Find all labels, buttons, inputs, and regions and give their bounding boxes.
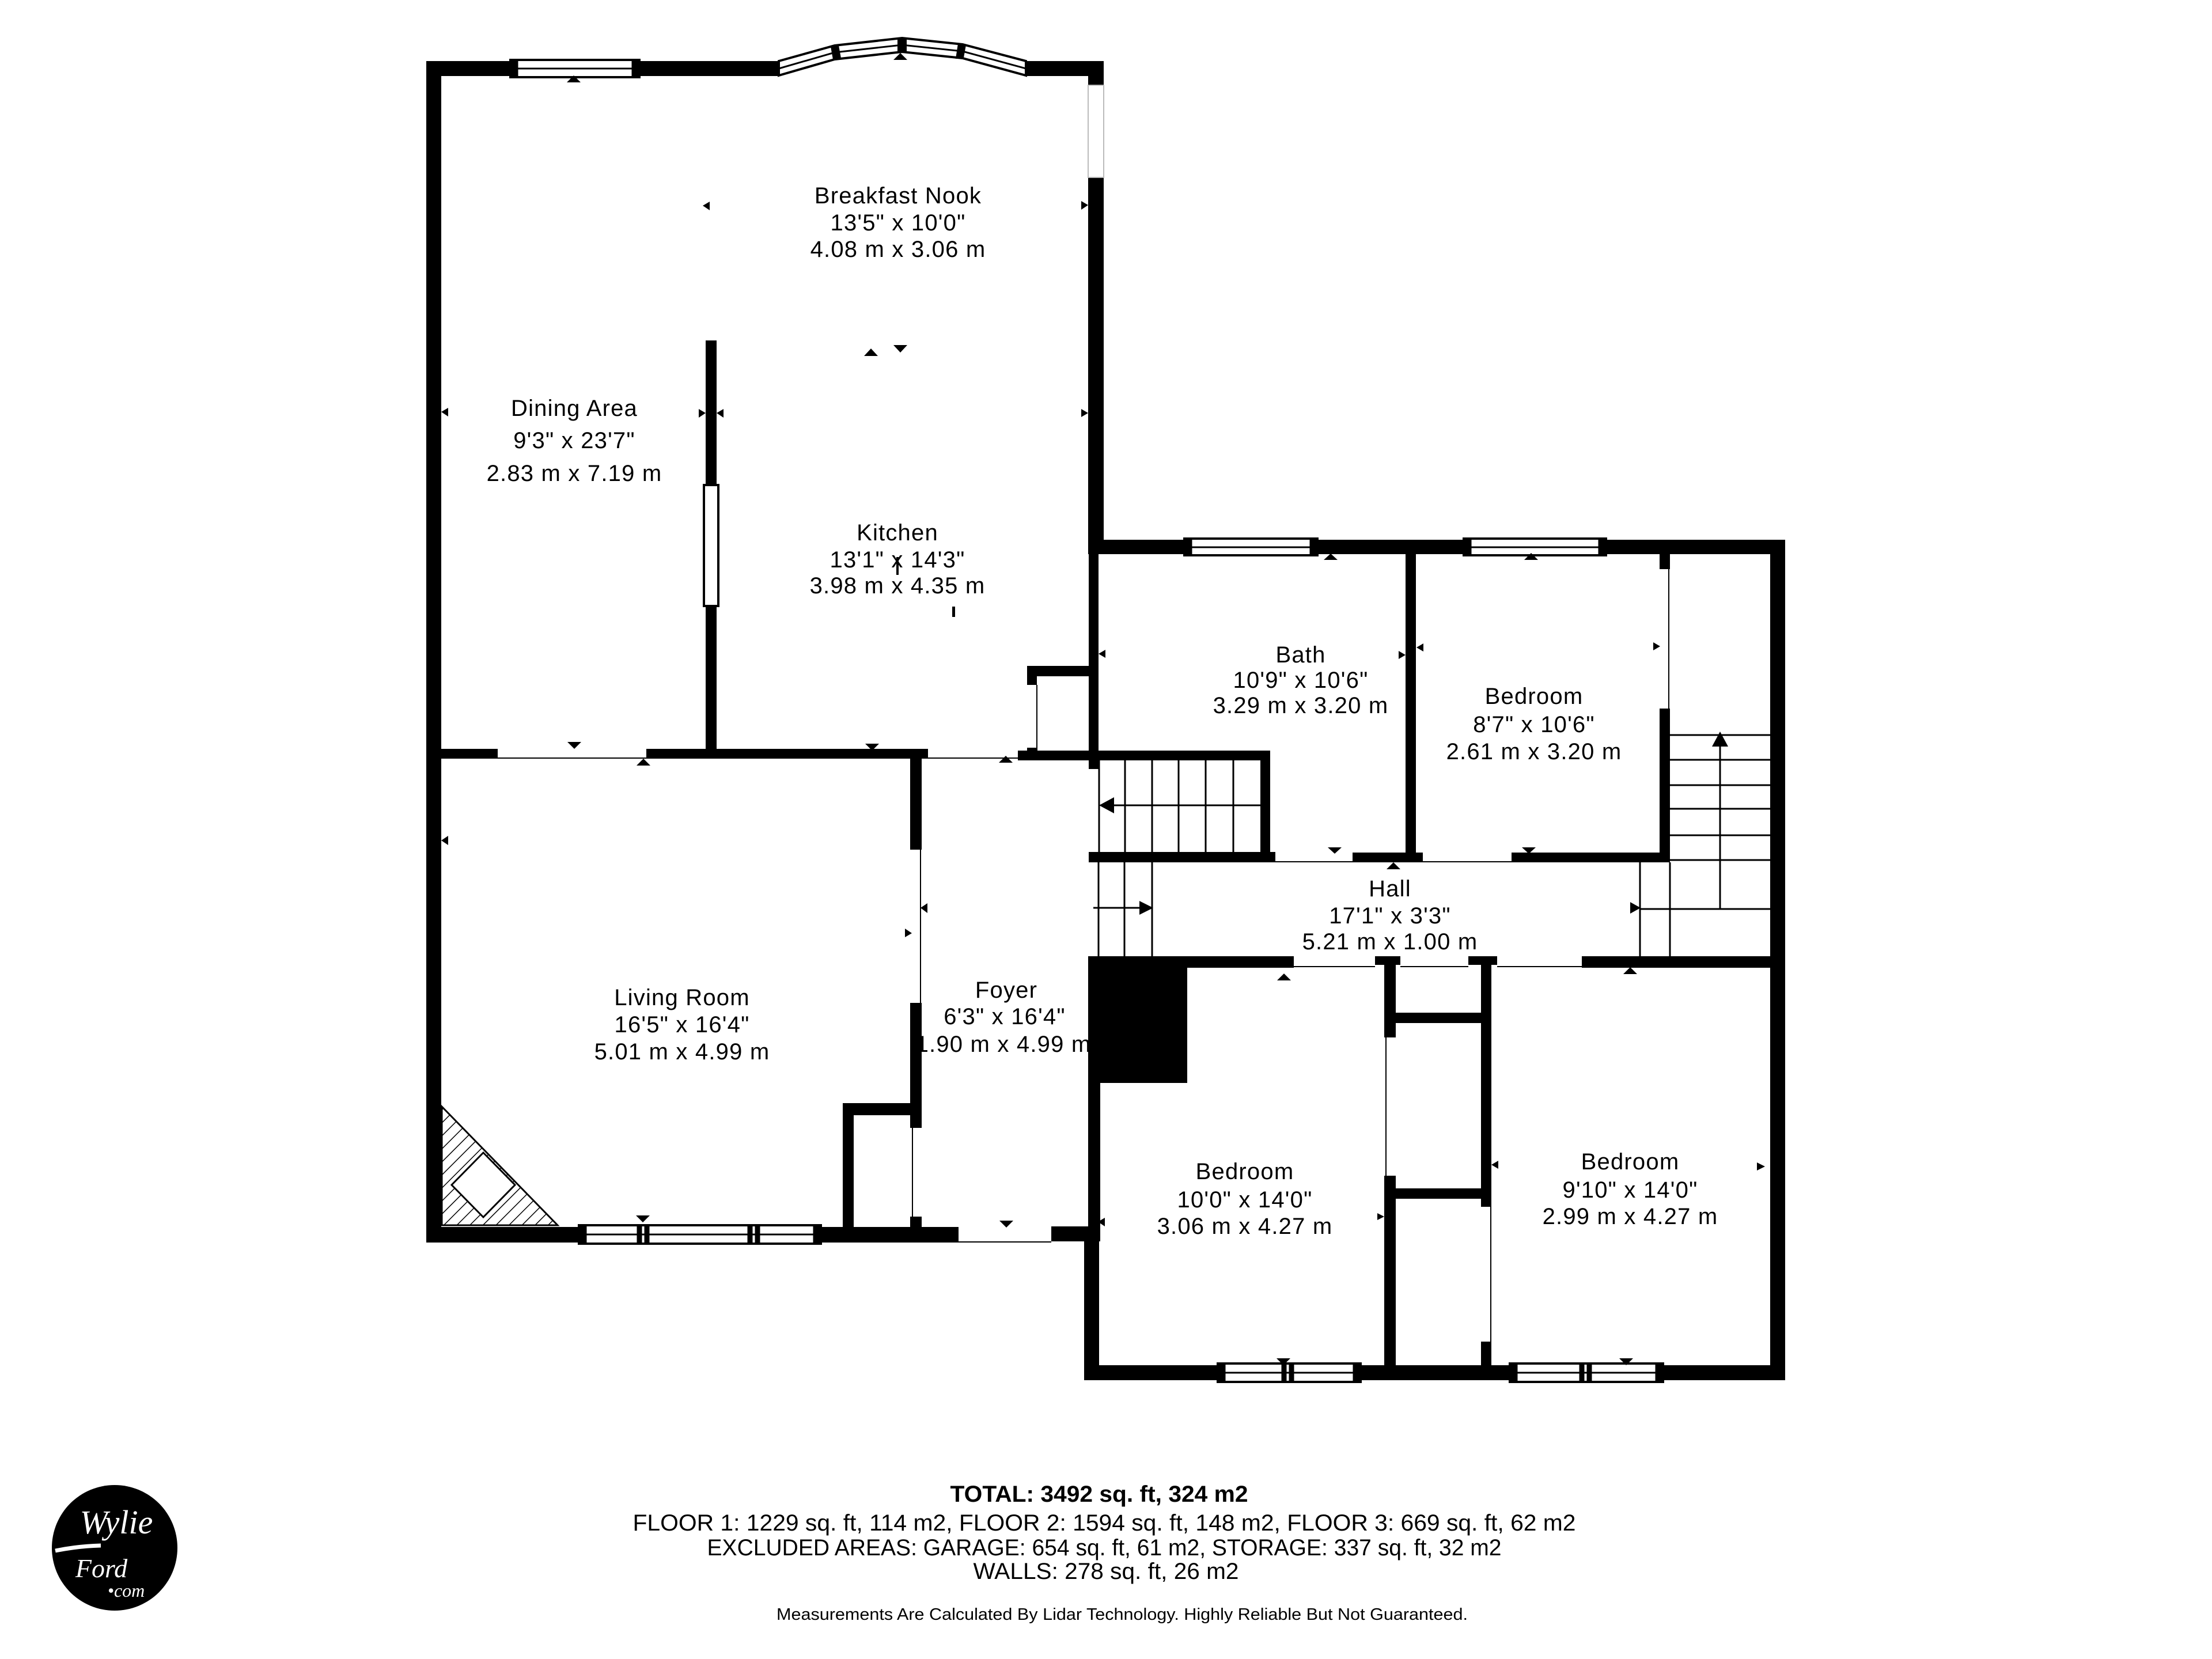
svg-text:Ford: Ford — [75, 1554, 128, 1583]
svg-text:Breakfast Nook13'5" x 10'0"4.0: Breakfast Nook13'5" x 10'0"4.08 m x 3.06… — [810, 183, 986, 262]
svg-text:Wylie: Wylie — [80, 1503, 153, 1541]
svg-text:Measurements Are Calculated By: Measurements Are Calculated By Lidar Tec… — [777, 1605, 1468, 1624]
svg-text:TOTAL: 3492 sq. ft, 324 m2: TOTAL: 3492 sq. ft, 324 m2 — [950, 1482, 1248, 1507]
svg-text:FLOOR 1: 1229 sq. ft, 114 m2,: FLOOR 1: 1229 sq. ft, 114 m2, FLOOR 2: 1… — [633, 1510, 1576, 1536]
svg-text:Living Room16'5" x 16'4"5.01 m: Living Room16'5" x 16'4"5.01 m x 4.99 m — [594, 985, 770, 1065]
svg-text:•com: •com — [108, 1580, 145, 1601]
svg-text:EXCLUDED AREAS: GARAGE: 654 sq: EXCLUDED AREAS: GARAGE: 654 sq. ft, 61 m… — [707, 1535, 1502, 1560]
svg-text:WALLS: 278 sq. ft, 26 m2: WALLS: 278 sq. ft, 26 m2 — [974, 1559, 1239, 1584]
